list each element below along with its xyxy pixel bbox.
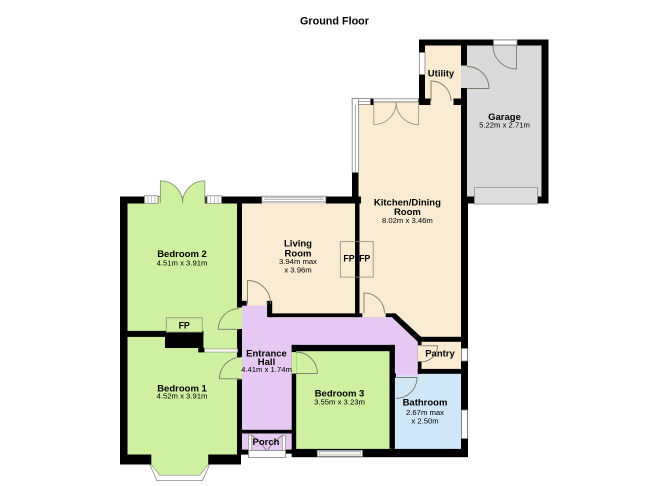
svg-text:x 2.50m: x 2.50m [411,416,438,425]
svg-text:3.55m x 3.23m: 3.55m x 3.23m [314,398,365,407]
svg-text:Utility: Utility [428,69,455,80]
svg-text:x 3.96m: x 3.96m [284,265,311,274]
svg-text:4.41m x 1.74m: 4.41m x 1.74m [241,365,292,374]
svg-text:4.52m x 3.91m: 4.52m x 3.91m [157,392,208,401]
svg-text:4.51m x 3.91m: 4.51m x 3.91m [157,258,208,267]
svg-text:FP: FP [343,254,354,264]
svg-text:8.02m x 3.46m: 8.02m x 3.46m [382,216,433,225]
svg-text:5.22m x 2.71m: 5.22m x 2.71m [479,121,530,130]
svg-text:Ground Floor: Ground Floor [300,16,370,28]
svg-text:Bathroom: Bathroom [403,397,448,408]
svg-text:Pantry: Pantry [425,349,455,360]
svg-text:FP: FP [359,254,370,264]
svg-text:FP: FP [179,320,190,330]
svg-text:Porch: Porch [253,437,280,448]
